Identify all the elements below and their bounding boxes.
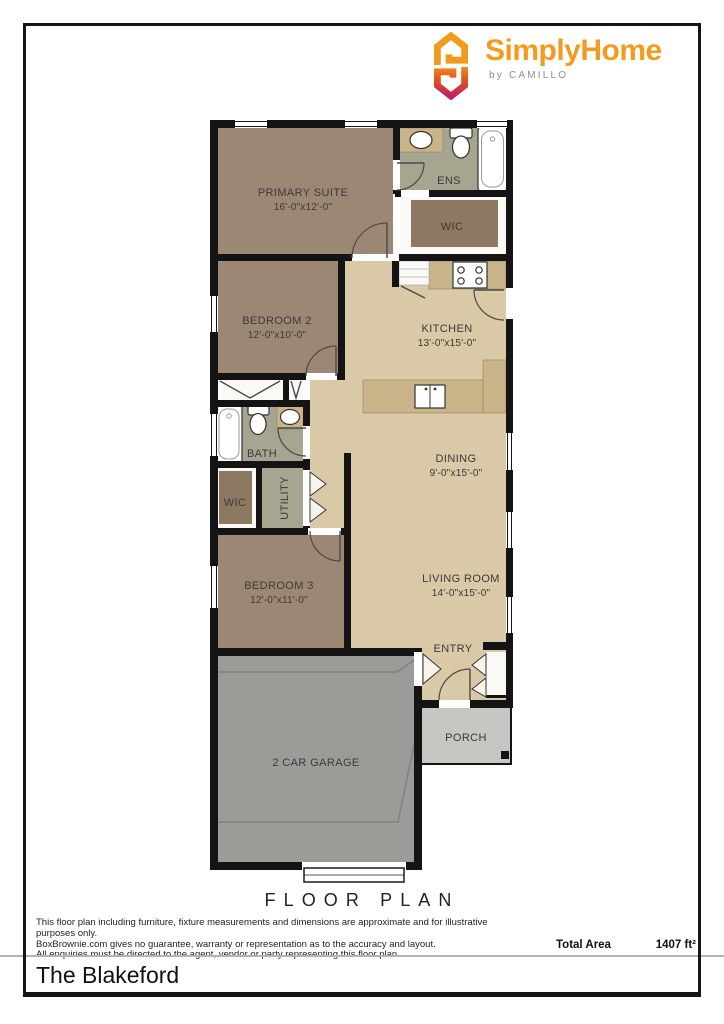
- kitchen-side-counter: [483, 360, 506, 413]
- wic1-opening: [401, 190, 429, 197]
- ens-toilet-icon: [453, 136, 470, 158]
- logo-text: SimplyHome by CAMILLO: [485, 36, 662, 81]
- bedroom3-dims: 12'-0"x11'-0": [250, 595, 308, 606]
- window: [210, 414, 218, 456]
- kitchen-dims: 13'-0"x15'-0": [418, 338, 477, 349]
- dining-label: DINING: [436, 453, 477, 465]
- porch-label: PORCH: [445, 732, 487, 744]
- porch-post: [501, 751, 509, 759]
- pantry: [399, 261, 429, 285]
- ens-sink-icon: [410, 132, 432, 149]
- entry-closet-floor: [486, 652, 506, 697]
- living-room-dims: 14'-0"x15'-0": [432, 588, 491, 599]
- window: [506, 433, 513, 470]
- wic2-label: WIC: [224, 497, 247, 509]
- simplyhome-house-icon: [428, 32, 474, 100]
- primary-suite-label: PRIMARY SUITE: [258, 187, 348, 199]
- entry-label: ENTRY: [433, 643, 472, 655]
- stove-icon: [453, 262, 487, 288]
- bath-label: BATH: [247, 448, 277, 460]
- bedroom2-label: BEDROOM 2: [242, 315, 312, 327]
- disclaimer-line: This floor plan including furniture, fix…: [36, 918, 516, 940]
- window: [210, 296, 218, 332]
- window: [506, 597, 513, 633]
- living-room-label: LIVING ROOM: [422, 573, 500, 585]
- ens-label: ENS: [437, 175, 461, 187]
- total-area-value: 1407 ft²: [628, 939, 696, 951]
- window: [235, 120, 267, 128]
- dining-dims: 9'-0"x15'-0": [430, 468, 483, 479]
- utility-label: UTILITY: [279, 476, 291, 520]
- divider-line: [0, 955, 724, 957]
- brand-byline: by CAMILLO: [489, 70, 662, 81]
- total-area-label: Total Area: [556, 939, 636, 951]
- logo: SimplyHome by CAMILLO: [428, 30, 698, 102]
- wic1-label: WIC: [441, 221, 464, 233]
- floor-plan-heading: FLOOR PLAN: [0, 890, 724, 911]
- plan-title: The Blakeford: [36, 962, 636, 989]
- garage-label: 2 CAR GARAGE: [272, 757, 359, 769]
- garage-door: [302, 862, 406, 882]
- kitchen-label: KITCHEN: [421, 323, 472, 335]
- primary-suite-dims: 16'-0"x12'-0": [274, 202, 333, 213]
- bedroom3-label: BEDROOM 3: [244, 580, 314, 592]
- window: [345, 120, 377, 128]
- window: [506, 512, 513, 548]
- window: [477, 120, 507, 128]
- bath-toilet-icon: [250, 414, 266, 435]
- floor-plan-drawing: PRIMARY SUITE 16'-0"x12'-0" ENS WIC BEDR…: [0, 0, 724, 1024]
- bath-sink-icon: [281, 410, 300, 425]
- bedroom2-dims: 12'-0"x10'-0": [248, 330, 307, 341]
- window: [210, 566, 218, 608]
- brand-name: SimplyHome: [485, 36, 662, 66]
